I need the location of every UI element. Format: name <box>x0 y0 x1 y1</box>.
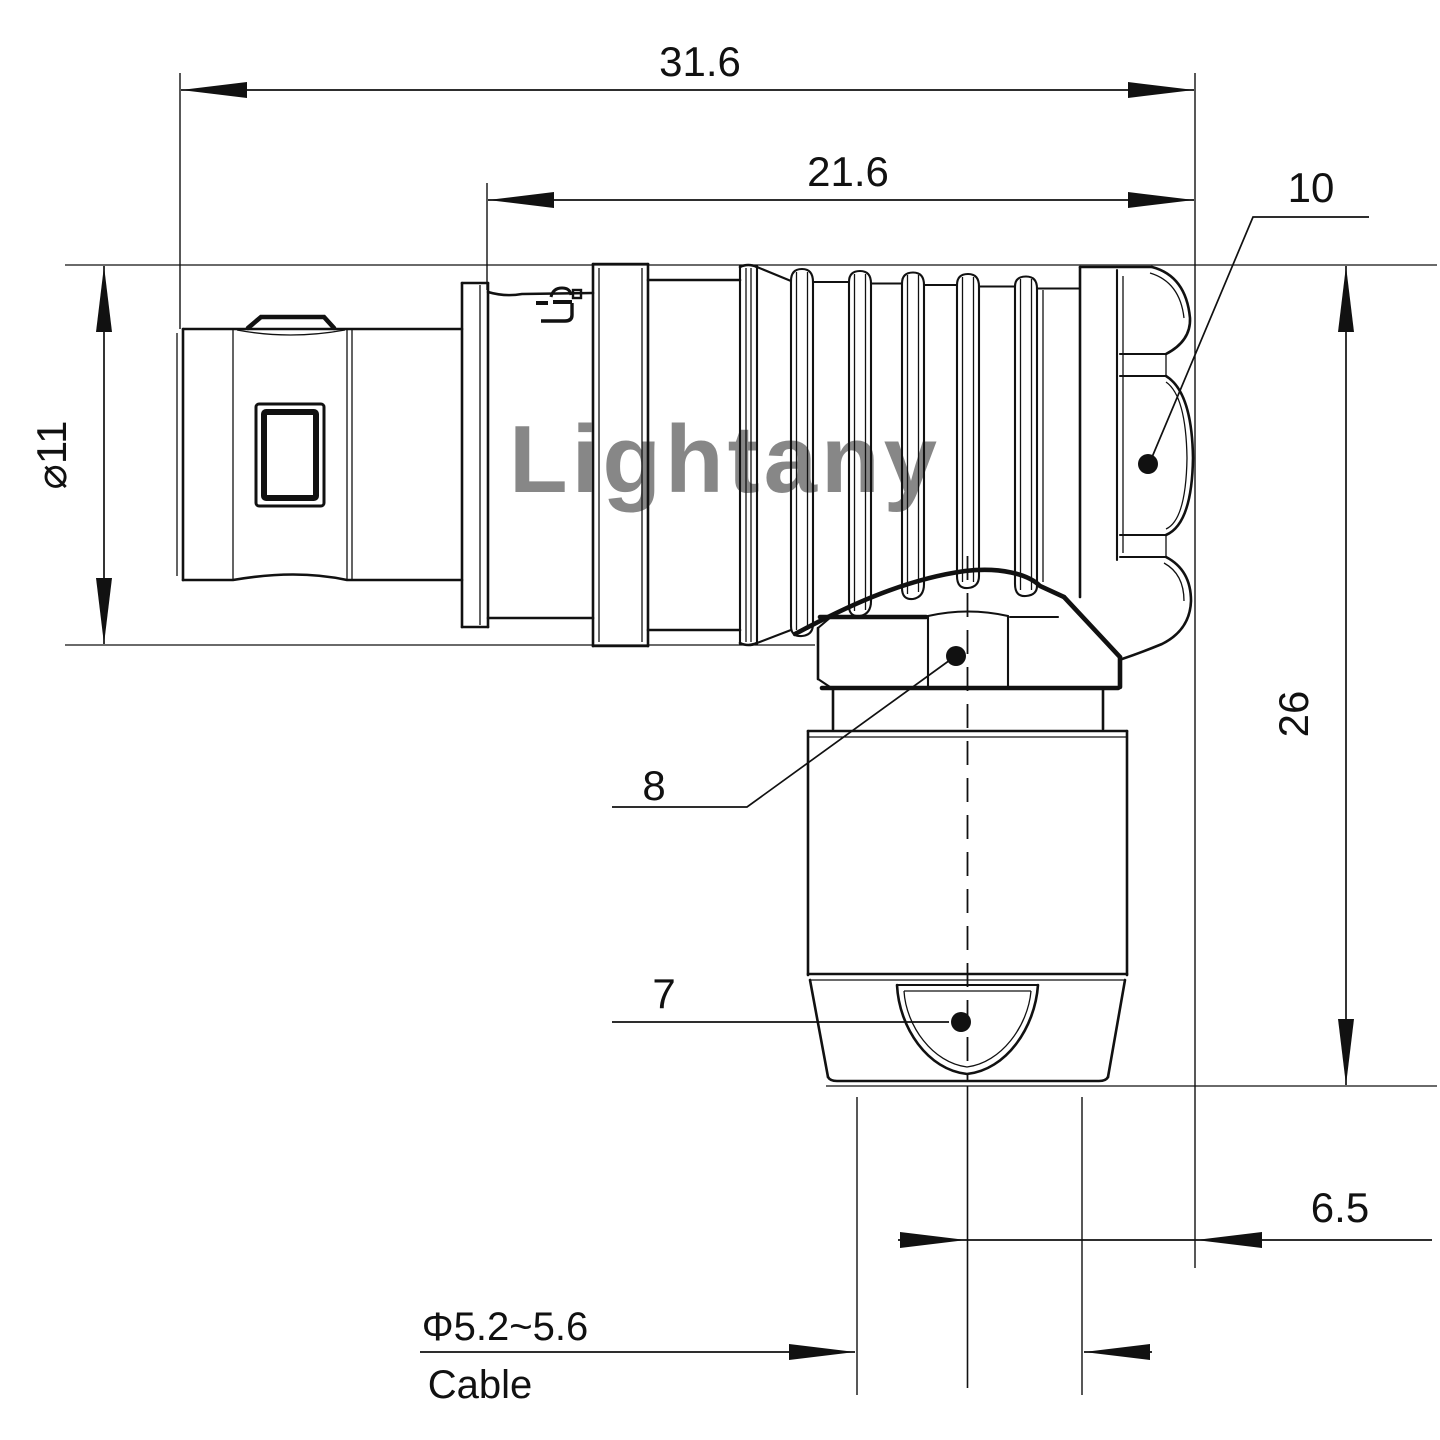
engraving-hook <box>541 303 572 321</box>
plug-notch-arc <box>237 330 345 335</box>
cable-caption-label: Cable <box>428 1363 533 1407</box>
saddle-bottom-0 <box>757 630 791 643</box>
dim316-arrow-right <box>1128 82 1194 98</box>
dim-overall-length: 31.6 <box>180 38 1195 1268</box>
nut-middle-lobe-inner <box>1166 382 1187 529</box>
dim11-label: ⌀11 <box>28 421 75 490</box>
dim65-arrow-right <box>1196 1232 1262 1248</box>
dim-axis-offset: 6.5 <box>898 1184 1432 1248</box>
rib1-bottom <box>740 643 757 645</box>
leader10-dot <box>1138 454 1158 474</box>
bump2-dome <box>849 271 871 284</box>
dim-elbow-height: 26 <box>1270 266 1354 1085</box>
dim26-label: 26 <box>1270 691 1317 738</box>
bump5-bdome <box>1015 584 1037 596</box>
nut-top-lobe-inner <box>1150 273 1184 318</box>
shoulder-right-chamfer <box>1064 597 1120 687</box>
callout-coupling-nut: 10 <box>1138 164 1369 474</box>
bump5-dome <box>1015 277 1037 289</box>
dim216-arrow-left <box>488 192 554 208</box>
cable-boot <box>810 980 1125 1086</box>
elbow-shoulder <box>795 570 1120 687</box>
dim316-label: 31.6 <box>659 38 741 85</box>
bump3-dome <box>902 273 924 286</box>
bump1-dome <box>791 269 813 282</box>
collar-ring <box>462 283 488 627</box>
callout-boot: 7 <box>612 970 971 1032</box>
cable-arrow-left <box>789 1344 855 1360</box>
callout-hex-nut: 8 <box>612 646 966 809</box>
callout7-label: 7 <box>652 970 675 1017</box>
dim-cable: Φ5.2~5.6 Cable <box>420 1097 1152 1407</box>
technical-drawing-page: Lightany <box>0 0 1440 1440</box>
shoulder-curve <box>795 570 1064 634</box>
saddle-0 <box>757 267 791 281</box>
dim26-arrow-up <box>1338 266 1354 332</box>
shell2-top <box>488 292 593 295</box>
plug-body <box>177 317 462 580</box>
dim216-label: 21.6 <box>807 148 889 195</box>
nut-top-lobe <box>1152 267 1190 354</box>
plug-key-notch <box>248 317 334 328</box>
leader8-dot <box>946 646 966 666</box>
callout10-label: 10 <box>1288 164 1335 211</box>
leader7-dot <box>951 1012 971 1032</box>
dim26-arrow-down <box>1338 1019 1354 1085</box>
dim65-label: 6.5 <box>1311 1184 1369 1231</box>
dim65-arrow-left <box>900 1232 966 1248</box>
nut-bottom-lobe <box>1122 557 1191 659</box>
cone-left <box>810 980 828 1077</box>
cone-right <box>1108 980 1125 1077</box>
bump4-dome <box>957 274 979 287</box>
cable-arrow-right <box>1084 1344 1150 1360</box>
dim316-arrow-left <box>181 82 247 98</box>
connector-drawing: Lightany <box>0 0 1440 1440</box>
watermark-text: Lightany <box>509 406 941 513</box>
dim11-arrow-up <box>96 266 112 332</box>
callout8-label: 8 <box>642 762 665 809</box>
latch-window-inner <box>264 412 316 498</box>
dim11-arrow-down <box>96 578 112 644</box>
dim216-arrow-right <box>1128 192 1194 208</box>
dim-plug-diameter: ⌀11 <box>28 266 112 644</box>
coupling-nut <box>1080 267 1193 659</box>
rib1-top <box>740 265 757 267</box>
cable-diameter-label: Φ5.2~5.6 <box>422 1305 588 1349</box>
plug-bottom-edge <box>183 575 462 581</box>
